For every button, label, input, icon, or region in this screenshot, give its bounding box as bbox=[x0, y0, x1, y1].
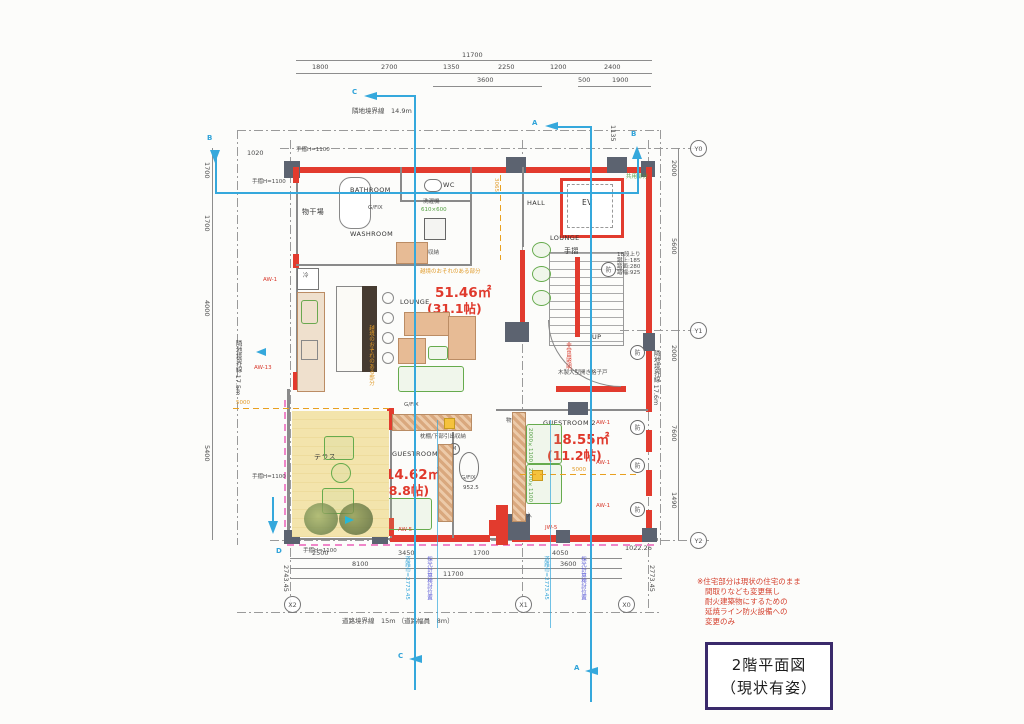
door-swing-arc bbox=[548, 320, 621, 387]
toilet-icon bbox=[424, 179, 442, 192]
dim-right-1: 2000 bbox=[670, 160, 677, 177]
dim-line-right bbox=[678, 148, 679, 540]
column bbox=[568, 402, 588, 415]
chair bbox=[532, 290, 551, 306]
coffee-table bbox=[428, 346, 448, 360]
section-marker-b-left: B bbox=[207, 134, 212, 142]
dim-right-5: 1490 bbox=[670, 492, 677, 509]
dim-5000-line-guest2 bbox=[520, 474, 640, 475]
grid-marker-y2: Y2 bbox=[690, 532, 707, 549]
window-label-aw1: AW-1 bbox=[596, 503, 610, 509]
wood-door-note: 木製大型開き格子戸 bbox=[558, 370, 608, 376]
drawing-title-box: 2階平面図 （現状有姿） bbox=[705, 642, 833, 710]
section-arrow-c-bottom bbox=[409, 655, 422, 663]
yellow-marker bbox=[532, 470, 543, 481]
grid-marker-y1: Y1 bbox=[690, 322, 707, 339]
dim-line-bottom-1 bbox=[290, 558, 622, 559]
refrigerator-label: 冷 bbox=[303, 273, 309, 279]
dim-left-4: 5400 bbox=[203, 445, 210, 462]
room-label-hall: HALL bbox=[527, 199, 545, 207]
dim-5000-terrace: 5000 bbox=[236, 400, 250, 406]
handrail-note: 手摺H=1100 bbox=[303, 548, 337, 554]
encroach-note-vertical: 越境のおそれのある部分 bbox=[368, 325, 374, 386]
sofa-green bbox=[398, 366, 464, 392]
grid-marker-x0: X0 bbox=[618, 596, 635, 613]
washer-icon bbox=[424, 218, 446, 240]
terrace-table bbox=[331, 463, 351, 483]
sofa bbox=[448, 316, 476, 360]
red-note-line2: 間取りなども変更無し bbox=[697, 587, 801, 597]
wall-bottom-red bbox=[390, 535, 490, 542]
sofa bbox=[404, 312, 450, 336]
dim-top-total: 11700 bbox=[462, 52, 483, 59]
wall-right bbox=[646, 430, 652, 452]
dim-right-4: 7600 bbox=[670, 425, 677, 442]
bar-stool bbox=[382, 332, 394, 344]
grid-marker-y0: Y0 bbox=[690, 140, 707, 157]
boundary-line-right bbox=[660, 130, 661, 545]
dim-line-top-sub2 bbox=[578, 86, 651, 87]
dim-line-top-total bbox=[296, 60, 652, 61]
section-arrow-b-right bbox=[632, 146, 642, 159]
road-boundary-line bbox=[237, 612, 660, 613]
section-stub bbox=[215, 150, 217, 192]
wall-left-lower bbox=[287, 389, 290, 540]
closet-strip-center bbox=[438, 444, 453, 522]
tree-icon bbox=[304, 503, 338, 535]
dim-line-top-sub1 bbox=[433, 86, 542, 87]
bar-stool bbox=[382, 292, 394, 304]
window-label-aw1: AW-1 bbox=[596, 420, 610, 426]
fire-mark-label: 防 bbox=[634, 461, 640, 470]
dim-top-4: 2250 bbox=[498, 64, 515, 71]
fire-mark-label: 防 bbox=[634, 505, 640, 514]
window-label-aw1: AW-1 bbox=[263, 277, 277, 283]
bathtub bbox=[339, 177, 371, 229]
dim-top-sub2: 500 bbox=[578, 77, 590, 84]
dim-bottom-left-v: 2743.45 bbox=[282, 565, 289, 592]
chair bbox=[532, 266, 551, 282]
fire-mark: 防 bbox=[630, 458, 645, 473]
drawing-title-line2: （現状有姿） bbox=[721, 677, 817, 698]
section-line-aux bbox=[550, 420, 551, 628]
partition bbox=[522, 167, 524, 247]
dim-bottom-5: 8100 bbox=[352, 561, 369, 568]
bar-stool bbox=[382, 312, 394, 324]
window-label-aw1: AW-1 bbox=[596, 460, 610, 466]
bar-stool bbox=[382, 352, 394, 364]
encroach-note-top: 越境のおそれのある部分 bbox=[420, 269, 481, 275]
column bbox=[643, 333, 655, 351]
dim-3065: 3065 bbox=[493, 178, 499, 192]
column bbox=[642, 528, 657, 542]
dim-left-1: 1700 bbox=[203, 162, 210, 179]
dim-bottom-total: 11700 bbox=[443, 571, 464, 578]
wall-right bbox=[646, 167, 652, 412]
boundary-left-label: 隣地境界線 17.5m bbox=[234, 340, 241, 395]
grid-x1-label: X1 bbox=[519, 601, 528, 609]
dim-bottom-right-v: 2773.45 bbox=[648, 565, 655, 592]
dim-line-top-row bbox=[296, 73, 652, 74]
partition bbox=[296, 264, 470, 266]
storage-label: 収納 bbox=[428, 250, 439, 256]
grid-y1-label: Y1 bbox=[694, 327, 702, 335]
handrail-note: 手摺H=1100 bbox=[252, 474, 286, 480]
section-marker-b-right: B bbox=[631, 130, 636, 138]
washer-size: 610×600 bbox=[421, 207, 447, 213]
dim-5000-line-terrace bbox=[233, 408, 393, 409]
dim-top-1: 1800 bbox=[312, 64, 329, 71]
blue-arrow-terrace bbox=[345, 516, 354, 524]
stair-handrail-label: 手摺 bbox=[564, 246, 579, 256]
closet-strip-guest2 bbox=[512, 412, 526, 522]
grid-x2-label: X2 bbox=[288, 601, 297, 609]
room-label-washroom: WASHROOM bbox=[350, 230, 393, 238]
fire-line-bottom bbox=[287, 544, 658, 546]
red-note-line5: 変更のみ bbox=[697, 617, 801, 627]
hatch-box-red bbox=[489, 520, 502, 536]
section-arrow-a-bottom bbox=[585, 667, 598, 675]
washer-label: 洗濯機 bbox=[423, 199, 440, 205]
encroach-dash-vertical bbox=[500, 175, 501, 260]
partition bbox=[470, 167, 472, 266]
dim-top-sub3: 1900 bbox=[612, 77, 629, 84]
fire-mark: 防 bbox=[630, 345, 645, 360]
dim-right-2: 5600 bbox=[670, 238, 677, 255]
dim-top-2: 2700 bbox=[381, 64, 398, 71]
grid-y0-label: Y0 bbox=[694, 145, 702, 153]
section-stub bbox=[558, 126, 591, 128]
section-line-a bbox=[590, 126, 592, 702]
fire-mark: 防 bbox=[630, 420, 645, 435]
red-note-line1: ※住宅部分は現状の住宅のまま bbox=[697, 577, 801, 587]
red-note-line4: 延焼ライン防火設備への bbox=[697, 607, 801, 617]
grid-marker-x2: X2 bbox=[284, 596, 301, 613]
boundary-line-top bbox=[237, 130, 660, 131]
dim-top-6: 2400 bbox=[604, 64, 621, 71]
boundary-top-label: 隣地境界線 14.9m bbox=[352, 108, 412, 115]
fire-mark-label: 防 bbox=[605, 265, 611, 274]
road-width-note: 道路巾=2773.45 bbox=[404, 556, 410, 600]
section-arrow-c-top bbox=[364, 92, 377, 100]
dim-bottom-4: 4050 bbox=[552, 550, 569, 557]
column bbox=[556, 530, 570, 543]
dim-top-5: 1200 bbox=[550, 64, 567, 71]
guest1-area-tatami: (8.8帖) bbox=[383, 480, 429, 499]
section-marker-a-bottom: A bbox=[574, 664, 579, 672]
road-width-note: 道路巾=2773.45 bbox=[543, 556, 549, 600]
wall-right bbox=[646, 470, 652, 496]
fire-mark: 防 bbox=[601, 262, 616, 277]
sofa bbox=[398, 338, 426, 364]
handrail-note: 手摺H=1100 bbox=[296, 147, 330, 153]
dim-right-3: 2000 bbox=[670, 345, 677, 362]
section-stub bbox=[637, 159, 639, 192]
fire-mark: 防 bbox=[630, 502, 645, 517]
dim-left-2: 1700 bbox=[203, 215, 210, 232]
wall-bottom-red bbox=[512, 535, 642, 542]
window-label-jw5: JW-5 bbox=[545, 525, 557, 531]
washroom-counter bbox=[396, 242, 428, 264]
dim-952: 952.5 bbox=[463, 485, 479, 491]
emergency-light-note: 非常用照明 bbox=[565, 342, 571, 370]
column bbox=[607, 157, 627, 173]
boundary-right-label: 隣地境界線 17.6m bbox=[652, 350, 659, 405]
grid-x0-label: X0 bbox=[622, 601, 631, 609]
dim-top-sub: 3600 bbox=[477, 77, 494, 84]
wall-top bbox=[296, 167, 652, 173]
section-arrow-a-top bbox=[545, 122, 558, 130]
room-label-monohoshi: 物干場 bbox=[302, 207, 324, 217]
dim-corner: 1022.26 bbox=[625, 545, 652, 552]
fire-mark-label: 防 bbox=[634, 348, 640, 357]
floor-plan-page: 隣地境界線 14.9m 隣地境界線 17.5m 隣地境界線 17.6m 道路境界… bbox=[0, 0, 1024, 724]
kitchen-island bbox=[336, 286, 364, 372]
section-marker-c-top: C bbox=[352, 88, 357, 96]
bed-size: 2000×1100 bbox=[527, 428, 533, 462]
drawing-title-line1: 2階平面図 bbox=[732, 654, 807, 675]
section-line-b bbox=[215, 192, 639, 194]
terrace-chair bbox=[324, 436, 354, 460]
section-marker-a-top: A bbox=[532, 119, 537, 127]
window-label-aw5: AW-5 bbox=[398, 527, 412, 533]
dim-5000-guest2: 5000 bbox=[572, 467, 586, 473]
window-label-aw13: AW-13 bbox=[254, 365, 272, 371]
light-calc-note: 採光計算検討位置 bbox=[426, 556, 432, 600]
dim-line-bottom-2 bbox=[290, 568, 622, 569]
section-arrow-d bbox=[268, 521, 278, 534]
section-line-c bbox=[414, 95, 416, 690]
stair-note-4: 踏幅:925 bbox=[617, 270, 641, 276]
grid-marker-x1: X1 bbox=[515, 596, 532, 613]
dim-line-bottom-3 bbox=[290, 578, 622, 579]
partition bbox=[400, 167, 402, 202]
chair bbox=[532, 242, 551, 258]
handrail-note: 手摺H=1100 bbox=[252, 179, 286, 185]
dim-top-3: 1350 bbox=[443, 64, 460, 71]
closet-band bbox=[392, 414, 472, 431]
section-marker-d: D bbox=[276, 547, 282, 555]
shaft-block bbox=[505, 322, 529, 342]
gfix-label-lounge: G/FIX bbox=[404, 402, 419, 408]
dim-bottom-3: 1700 bbox=[473, 550, 490, 557]
dim-bottom-6: 3600 bbox=[560, 561, 577, 568]
dim-line-left bbox=[212, 148, 213, 540]
kitchen-stove bbox=[301, 340, 318, 360]
section-line-aux bbox=[437, 420, 438, 628]
room-label-lounge-stair: LOUNGE bbox=[550, 234, 580, 242]
fire-line-left bbox=[284, 400, 286, 540]
section-stub bbox=[377, 95, 415, 97]
blue-arrow-aw13 bbox=[256, 348, 266, 356]
dim-1135: 1135 bbox=[609, 125, 616, 142]
red-note-line3: 耐火建築物にするための bbox=[697, 597, 801, 607]
dim-1020: 1020 bbox=[247, 150, 264, 157]
room-label-wc: WC bbox=[443, 181, 455, 189]
kitchen-sink bbox=[301, 300, 318, 324]
gfix-label-bath: G/FIX bbox=[368, 205, 383, 211]
section-stub bbox=[272, 497, 274, 521]
light-calc-note: 採光計算検討位置 bbox=[580, 556, 586, 600]
grid-y2-label: Y2 bbox=[694, 537, 702, 545]
wall-left-red bbox=[293, 167, 299, 183]
dim-left-3: 4000 bbox=[203, 300, 210, 317]
yellow-marker bbox=[444, 418, 455, 429]
stair-note: 18段上り 蹴上:185 踏面:280 踏幅:925 bbox=[617, 252, 641, 276]
section-marker-c-bottom: C bbox=[398, 652, 403, 660]
fire-mark-label: 防 bbox=[634, 423, 640, 432]
closet-note: 枕棚/下部引出収納 bbox=[420, 434, 466, 440]
red-remark-note: ※住宅部分は現状の住宅のまま 間取りなども変更無し 耐火建築物にするための 延焼… bbox=[697, 577, 801, 627]
fixture-oval bbox=[459, 452, 479, 482]
